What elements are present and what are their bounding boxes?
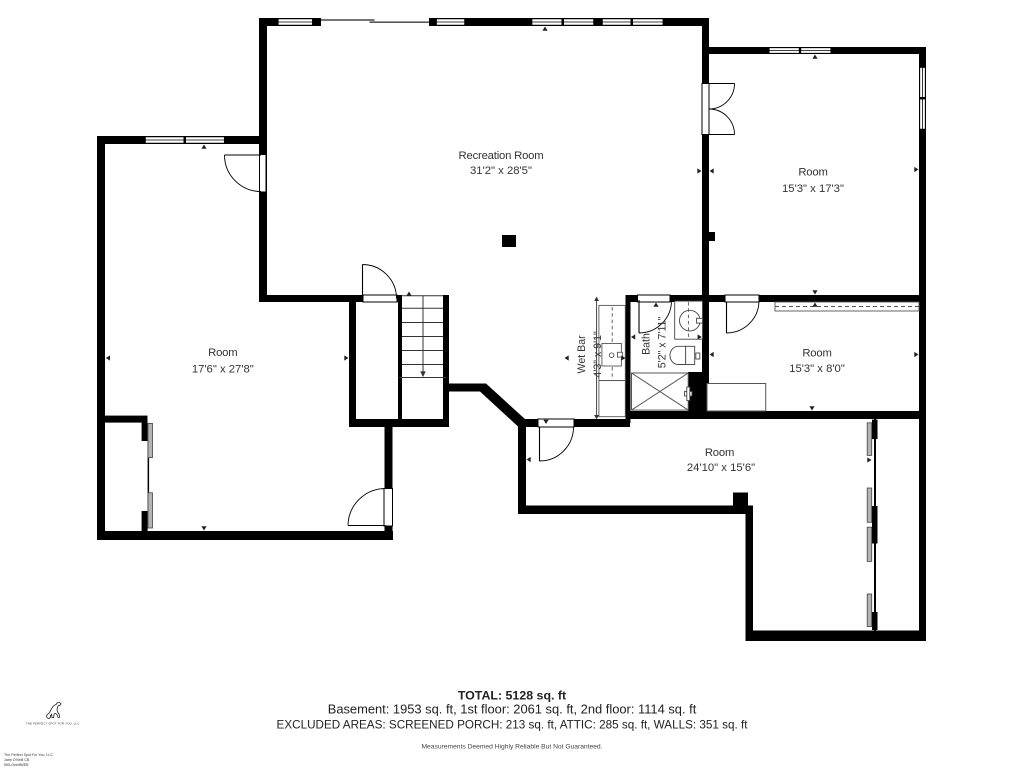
svg-text:Room: Room [208,347,237,359]
svg-text:15'3" x 17'3": 15'3" x 17'3" [782,183,844,195]
svg-text:Room: Room [798,167,827,179]
svg-text:Jane O'Neill CB: Jane O'Neill CB [4,758,30,762]
svg-text:4'3" x 9'1": 4'3" x 9'1" [592,331,604,378]
svg-text:31'2" x 28'5": 31'2" x 28'5" [470,165,532,177]
svg-text:Room: Room [802,348,831,360]
svg-text:Room: Room [705,447,734,459]
svg-text:17'6" x 27'8": 17'6" x 27'8" [192,364,254,376]
svg-text:Measurements Deemed Highly Rel: Measurements Deemed Highly Reliable But … [421,744,602,751]
svg-text:TOTAL: 5128 sq. ft: TOTAL: 5128 sq. ft [458,689,566,703]
svg-text:15'3" x 8'0": 15'3" x 8'0" [789,363,845,375]
svg-text:Recreation Room: Recreation Room [459,150,544,162]
svg-text:Basement: 1953 sq. ft, 1st flo: Basement: 1953 sq. ft, 1st floor: 2061 s… [328,702,697,717]
svg-text:555-OneillWEB: 555-OneillWEB [4,763,29,767]
svg-text:Bath: Bath [641,333,653,355]
svg-text:Wet Bar: Wet Bar [576,335,588,374]
svg-text:24'10" x 15'6": 24'10" x 15'6" [687,462,755,474]
svg-text:EXCLUDED AREAS: SCREENED PORCH: EXCLUDED AREAS: SCREENED PORCH: 213 sq. … [277,718,749,731]
svg-text:5'2" x 7'11": 5'2" x 7'11" [657,317,669,369]
svg-text:THE PERFECT SPOT FOR YOU, LLC: THE PERFECT SPOT FOR YOU, LLC [26,722,80,726]
svg-text:The Perfect Spot For You, LLC: The Perfect Spot For You, LLC [4,753,53,757]
